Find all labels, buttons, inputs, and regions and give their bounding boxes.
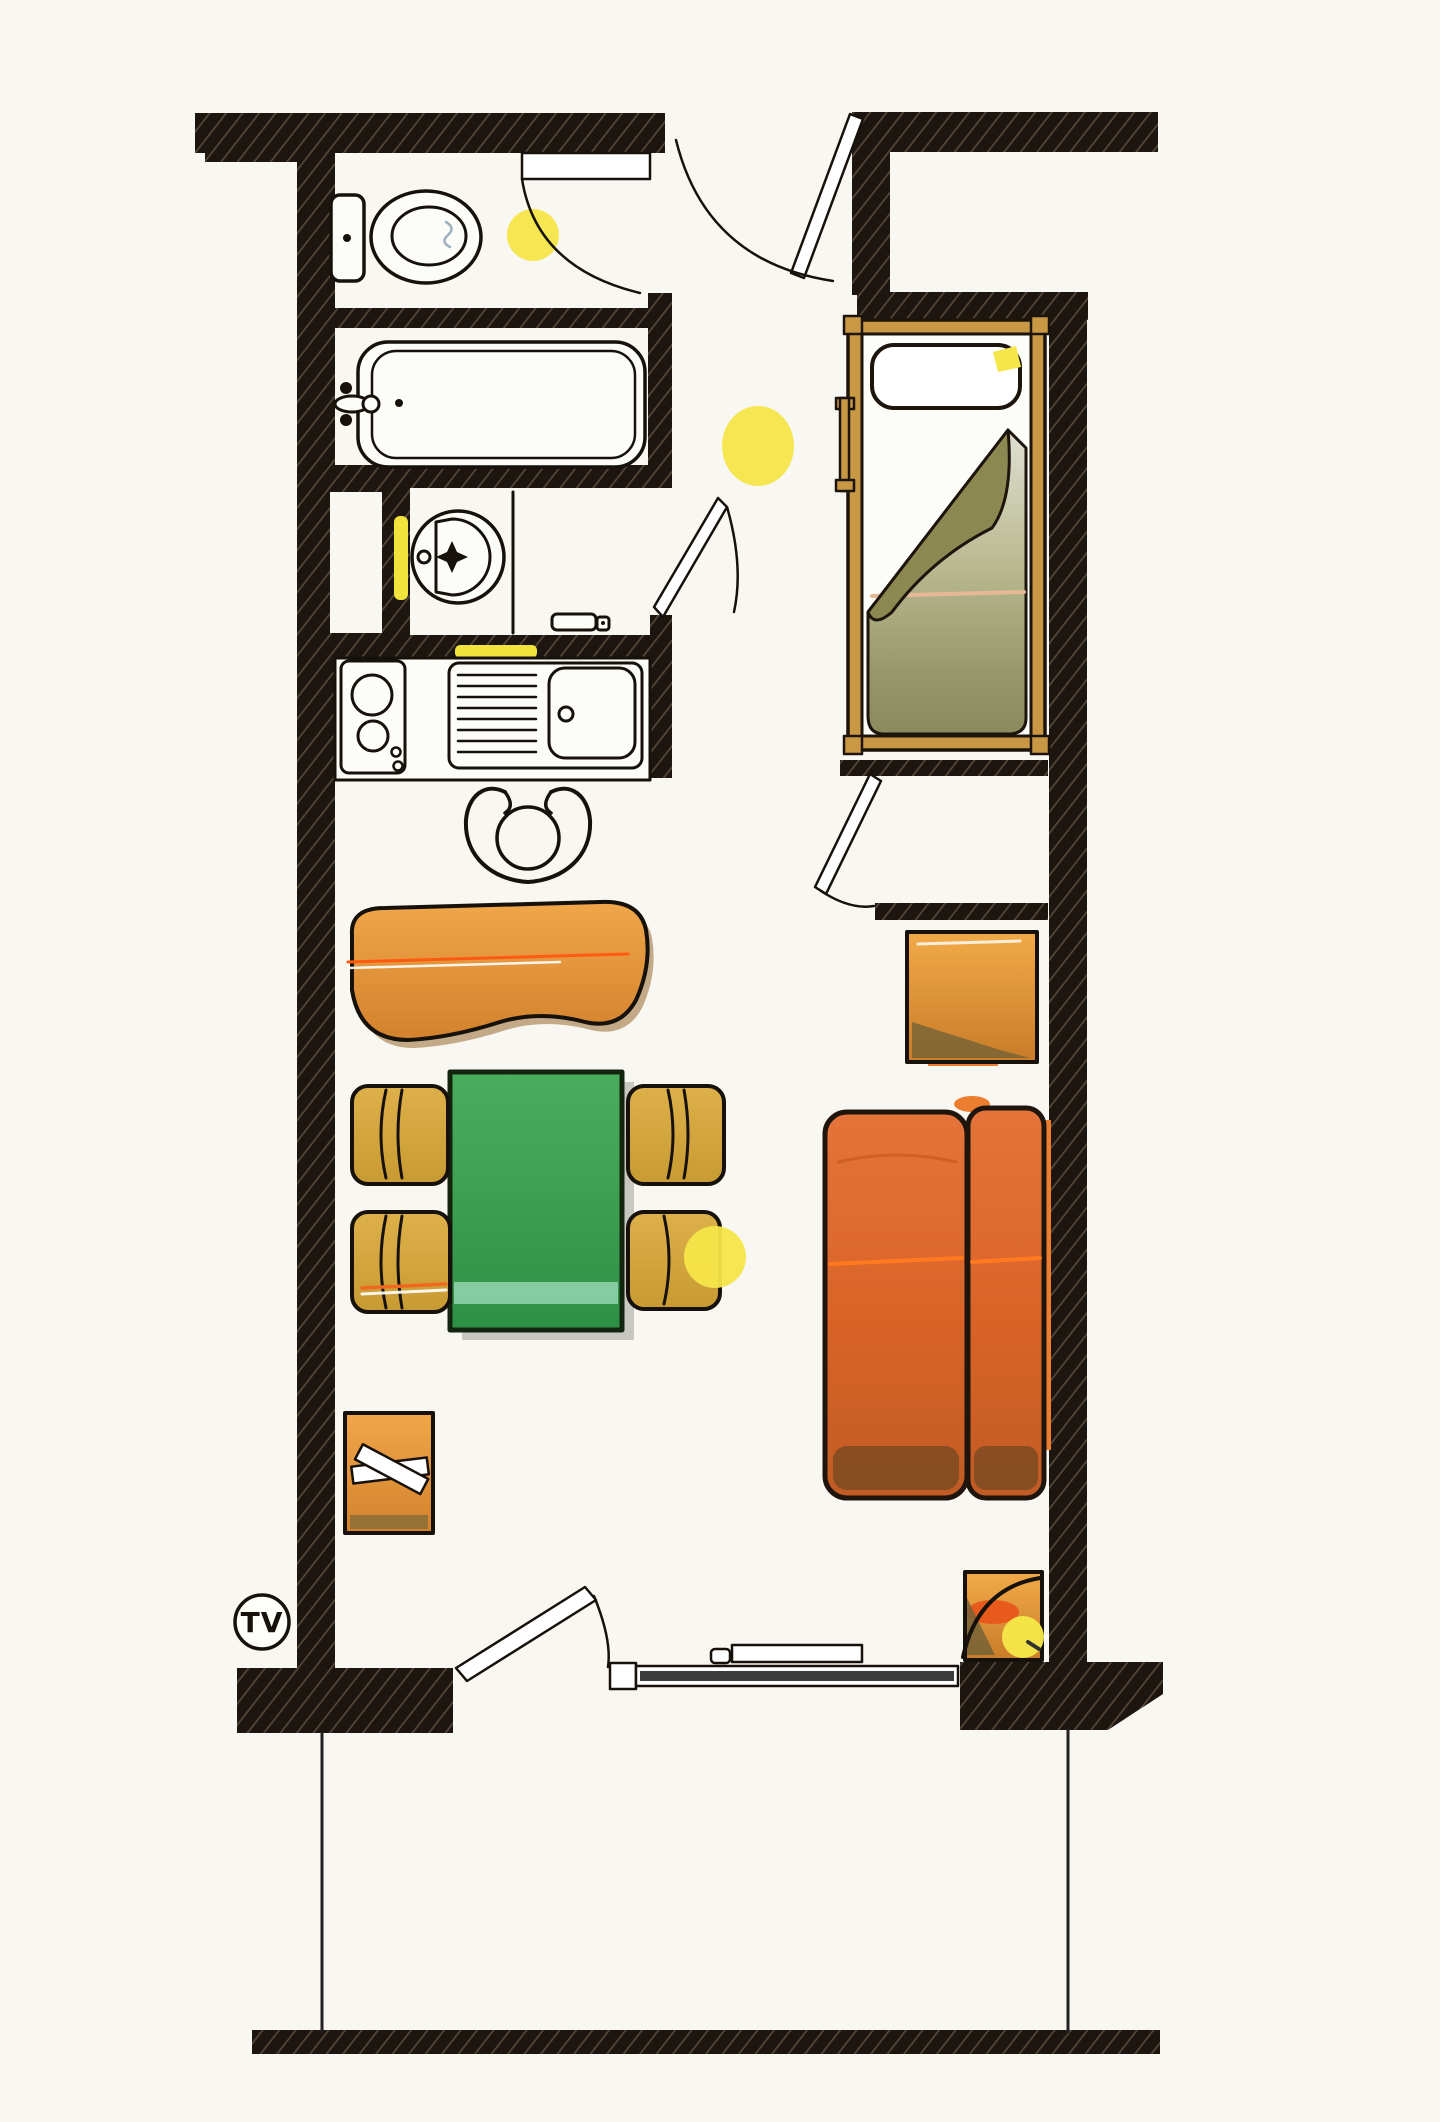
luggage-rack: [345, 1413, 433, 1533]
towel-yellow-vertical: [394, 516, 408, 600]
towel-yellow-horizontal: [455, 645, 537, 658]
sink-basin: [549, 668, 635, 758]
light-dining: [684, 1226, 746, 1288]
wc-door-leaf: [522, 153, 650, 179]
wall-bed-niche-bottom: [875, 903, 1048, 920]
bathtub-tap-hot: [340, 382, 352, 394]
floor-plan-svg: TV: [0, 0, 1440, 2122]
paper-background: [0, 0, 1440, 2122]
window-handle: [711, 1649, 730, 1663]
light-hall: [722, 406, 794, 486]
bathtub-mixer-knob: [363, 396, 379, 412]
bathtub-tap-cold: [340, 414, 352, 426]
wall-kitchen-hall-stub: [650, 615, 672, 778]
bench-seat: [352, 902, 648, 1040]
bed-rail-cap-bottom: [836, 480, 854, 491]
wall-cap-top-right: [852, 112, 1158, 152]
bed-corner-bl: [844, 736, 862, 754]
dining-table-light-band: [454, 1282, 618, 1304]
sofas: [825, 1096, 1051, 1498]
sofa-left-foot-shade: [833, 1446, 959, 1490]
wall-cap-top-left: [195, 113, 665, 153]
sofa-right-foot-shade: [974, 1446, 1038, 1490]
window-sliding-leaf: [732, 1645, 862, 1662]
bed-corner-tr: [1031, 316, 1049, 334]
wall-right-outer: [1049, 292, 1087, 1664]
bed-corner-br: [1031, 736, 1049, 754]
wc-room: [331, 191, 481, 283]
dining-chair-3: [628, 1086, 724, 1184]
glass-shelf: [552, 614, 596, 630]
floor-plan-page: TV: [0, 0, 1440, 2122]
sofa-right: [968, 1108, 1044, 1498]
wardrobe: [907, 932, 1037, 1066]
window-hinge-block: [610, 1663, 636, 1689]
bed-side-rail: [840, 398, 849, 491]
washbasin-drain-knob: [418, 551, 430, 563]
bathtub-drain: [395, 399, 403, 407]
wall-left-outer: [297, 150, 335, 1670]
wall-cap-bottom-left: [237, 1668, 453, 1733]
balcony-edge: [252, 2030, 1160, 2054]
sofa-left: [825, 1112, 967, 1498]
light-nightstand: [1002, 1616, 1044, 1658]
wall-bath-hall: [648, 293, 672, 488]
toilet-flush-button: [343, 234, 351, 242]
tv-outlet: TV: [235, 1595, 289, 1649]
tv-label: TV: [241, 1606, 284, 1639]
bathroom: [335, 342, 645, 467]
wall-right-upper: [852, 150, 890, 295]
bed-corner-tl: [844, 316, 862, 334]
window-glazing: [640, 1671, 954, 1681]
wall-wc-bath: [297, 308, 650, 328]
tooth-glass-dot: [601, 621, 605, 625]
service-shaft: [330, 492, 382, 633]
luggage-rack-shadow: [350, 1515, 428, 1529]
